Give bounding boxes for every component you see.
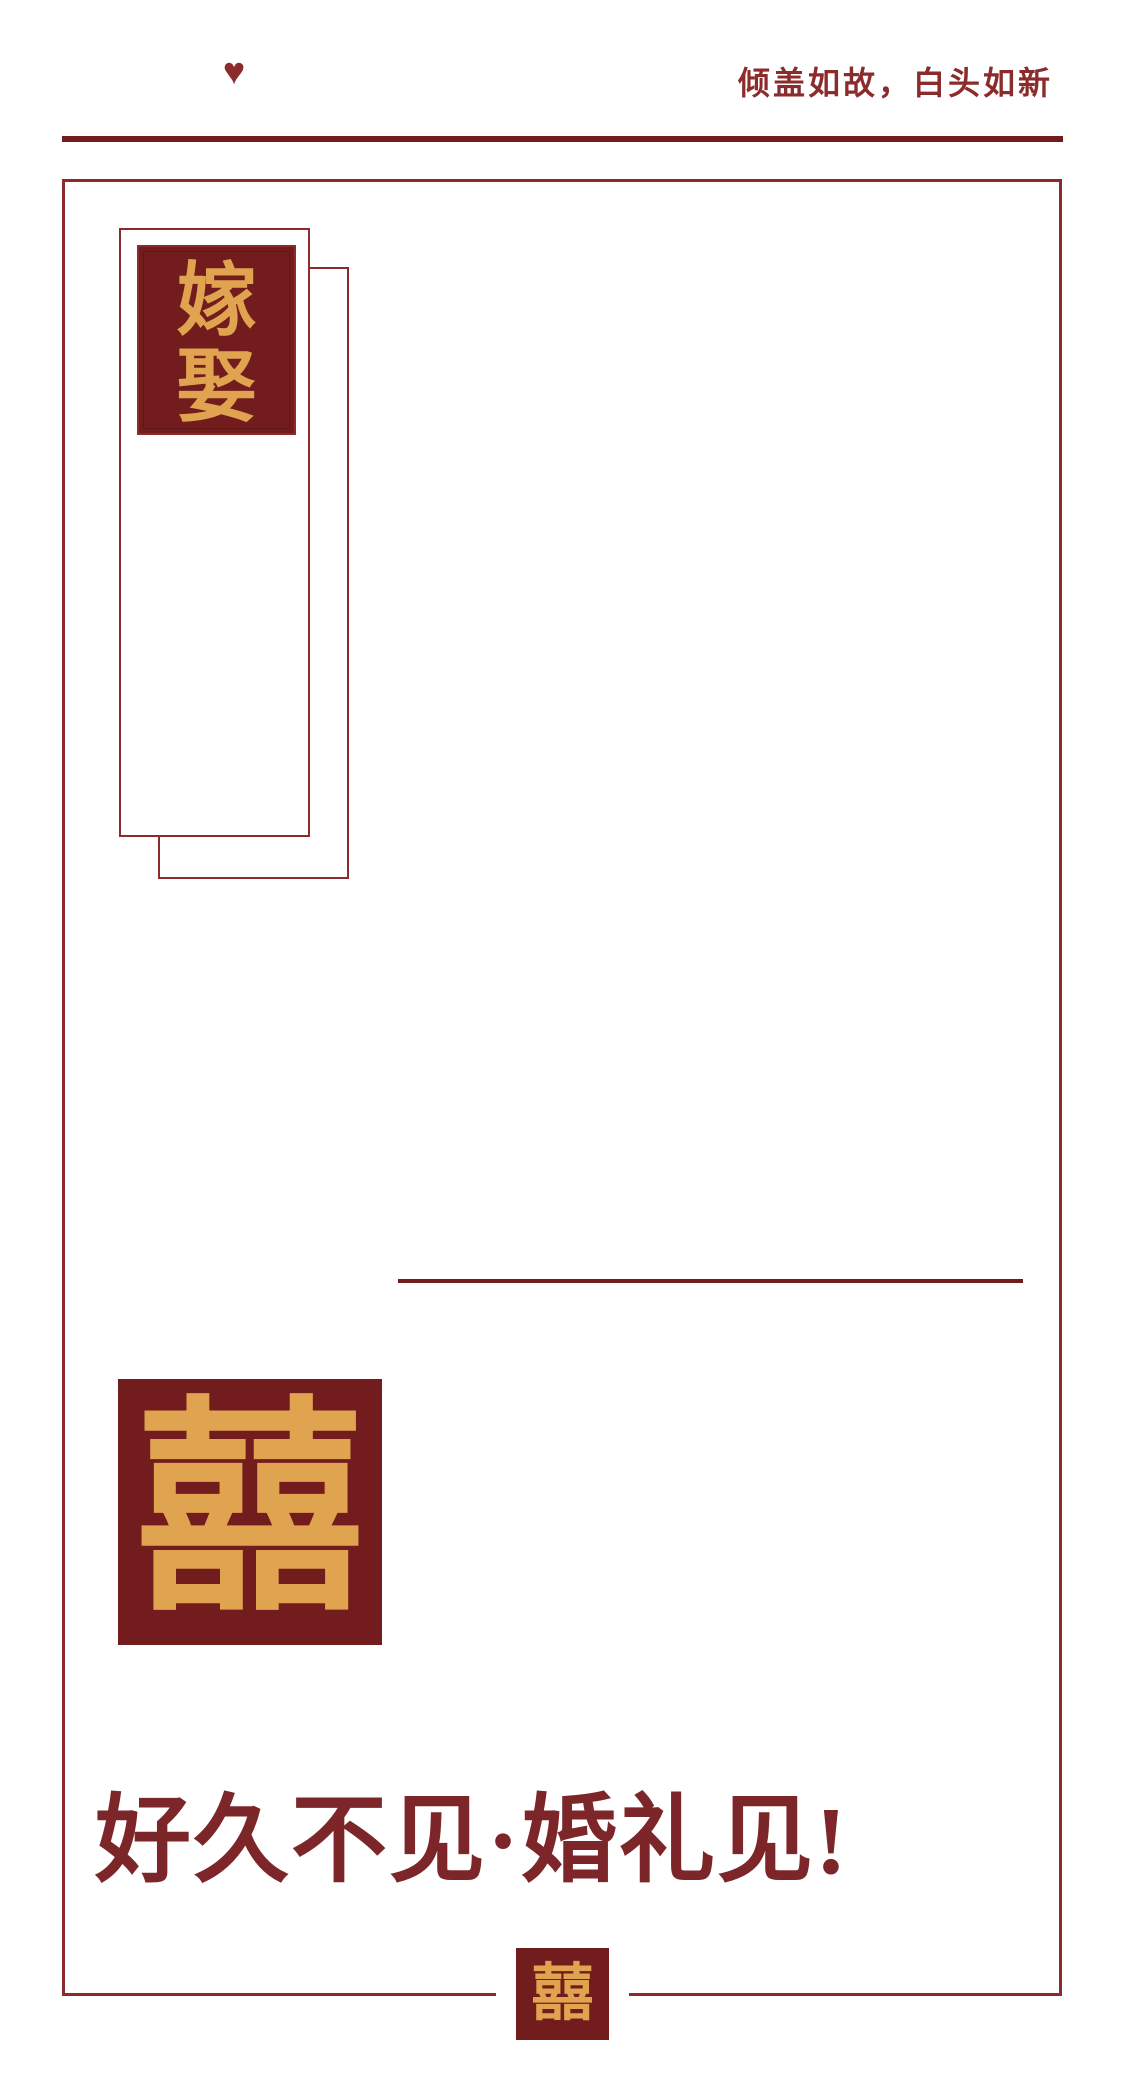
double-happiness-seal-large: 囍 — [118, 1379, 382, 1645]
double-happiness-glyph-large: 囍 — [136, 1379, 364, 1645]
header-divider-rule — [62, 136, 1063, 142]
marriage-stamp: 嫁 娶 — [137, 245, 296, 435]
heart-icon: ♥ — [216, 52, 252, 92]
header-tagline: 倾盖如故，白头如新 — [738, 58, 1053, 104]
stamp-char-top: 嫁 — [177, 259, 257, 345]
double-happiness-seal-small: 囍 — [516, 1948, 609, 2040]
double-happiness-glyph-small: 囍 — [531, 1948, 593, 2040]
stamp-char-bottom: 娶 — [177, 345, 257, 431]
middle-rule — [398, 1279, 1023, 1283]
headline-text: 好久不见·婚礼见! — [95, 1762, 1055, 1901]
wedding-invitation-poster: ♥ 倾盖如故，白头如新 嫁 娶 囍 好久不见·婚礼见! 囍 — [0, 0, 1125, 2091]
